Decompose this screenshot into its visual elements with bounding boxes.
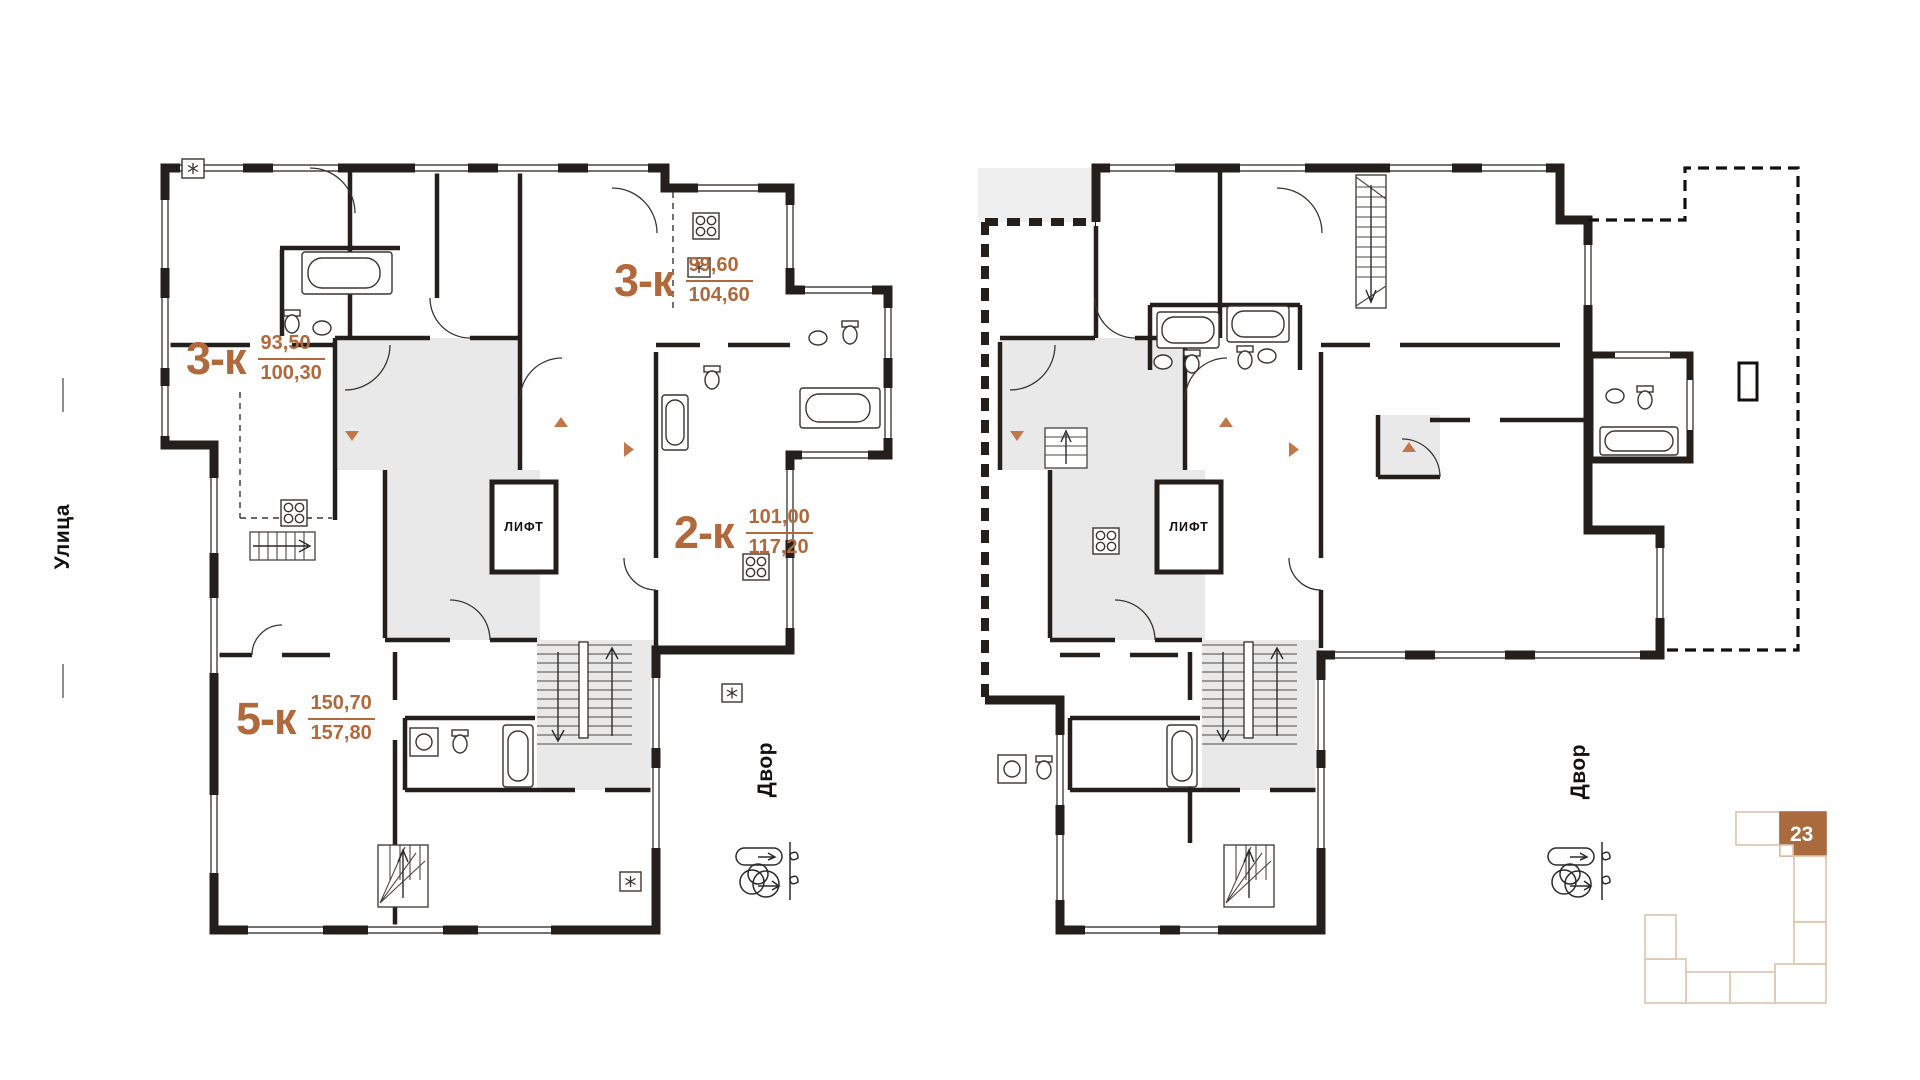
minimap-cell[interactable]: [1794, 922, 1826, 964]
minimap-cell[interactable]: [1736, 812, 1780, 845]
minimap-cell[interactable]: [1686, 972, 1730, 1003]
bathtub: [302, 252, 392, 294]
bathtub-vertical: [1167, 725, 1197, 787]
courtyard-label-right: Двор: [1567, 744, 1591, 799]
apartment-label-5k[interactable]: 5-к 150,70 157,80: [236, 692, 375, 745]
tree-icon-right: [1540, 834, 1614, 908]
washer: [410, 728, 438, 756]
vent-icon: [182, 159, 204, 178]
minimap-cell[interactable]: [1780, 845, 1793, 856]
apartment-type: 2-к: [674, 510, 734, 555]
apartment-area-living: 93,50: [258, 332, 325, 360]
stove: [693, 213, 719, 239]
sink: [809, 331, 827, 345]
building-minimap: 23: [1635, 800, 1835, 1015]
apartment-area-total: 104,60: [686, 282, 753, 308]
apartment-area-total: 100,30: [258, 360, 325, 386]
toilet: [452, 730, 468, 753]
tree-icon-left: [728, 834, 802, 908]
bathtub: [800, 388, 880, 428]
stove: [281, 500, 307, 526]
bathtub: [1227, 306, 1289, 342]
vent-icon: [722, 684, 742, 702]
apartment-label-2k[interactable]: 2-к 101,00 117,20: [674, 506, 813, 559]
apartment-type: 3-к: [614, 258, 674, 303]
toilet: [1637, 386, 1653, 409]
toilet: [1036, 756, 1052, 779]
side-stair-left: [250, 532, 315, 560]
side-stair-right: [1045, 428, 1087, 468]
street-label: Улица: [51, 504, 75, 569]
upper-stair-right: [1356, 175, 1386, 308]
street-line-bottom: [62, 664, 64, 698]
apartment-area-total: 157,80: [308, 720, 375, 746]
bathtub-vertical: [662, 395, 688, 450]
winder-stair-right: [1224, 845, 1274, 907]
minimap-cell[interactable]: [1730, 972, 1775, 1003]
courtyard-label-left: Двор: [754, 742, 778, 797]
neighbor-section-fill: [978, 168, 1096, 222]
elevator-label-left: ЛИФТ: [492, 482, 556, 572]
toilet: [1237, 346, 1253, 369]
sink: [1606, 389, 1624, 403]
washer: [998, 755, 1026, 783]
apartment-area-living: 99,60: [686, 254, 753, 282]
bathtub: [1157, 312, 1219, 348]
winder-stair-left: [378, 845, 428, 907]
toilet: [842, 321, 858, 344]
stove: [1093, 528, 1119, 554]
elevator-label-right: ЛИФТ: [1157, 482, 1221, 572]
floor-plans-drawing: [0, 0, 1920, 1080]
apartment-label-3k-1[interactable]: 3-к 93,50 100,30: [186, 332, 325, 385]
minimap-section-number: 23: [1790, 823, 1813, 846]
apartment-area-total: 117,20: [746, 534, 813, 560]
bathtub: [1600, 427, 1678, 455]
apartment-area-living: 150,70: [308, 692, 375, 720]
minimap-cell[interactable]: [1794, 856, 1826, 922]
sink: [1258, 349, 1276, 363]
apartment-area-living: 101,00: [746, 506, 813, 534]
street-line-top: [62, 378, 64, 412]
bathtub-vertical: [503, 725, 533, 787]
toilet: [1184, 350, 1200, 373]
sink: [1154, 355, 1172, 369]
minimap-cell[interactable]: [1775, 964, 1826, 1003]
apartment-label-3k-2[interactable]: 3-к 99,60 104,60: [614, 254, 753, 307]
apartment-type: 5-к: [236, 696, 296, 741]
toilet: [284, 310, 300, 333]
minimap-cell[interactable]: [1645, 915, 1676, 959]
minimap-cell[interactable]: [1645, 959, 1686, 1003]
toilet: [704, 366, 720, 389]
apartment-type: 3-к: [186, 336, 246, 381]
vent-icon: [620, 872, 641, 891]
